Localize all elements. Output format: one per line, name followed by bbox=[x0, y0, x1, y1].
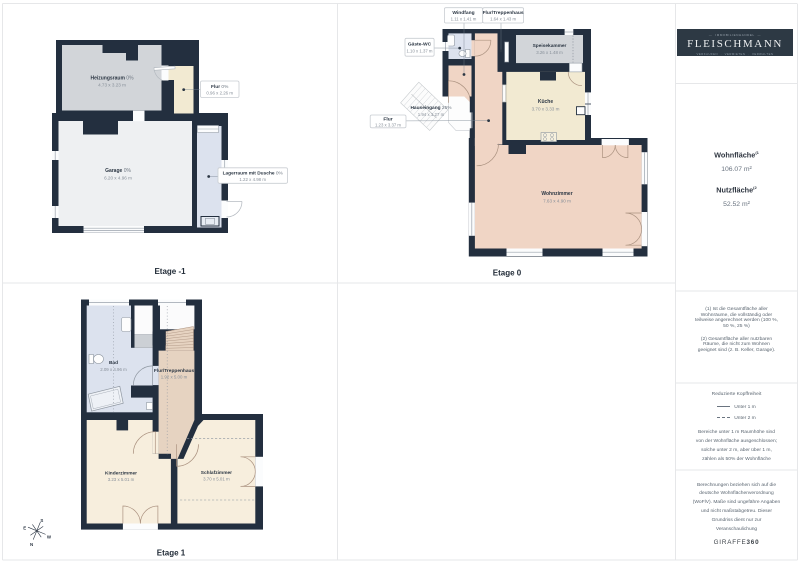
svg-text:Etage 1: Etage 1 bbox=[157, 549, 186, 558]
svg-text:Wohnzimmer: Wohnzimmer bbox=[541, 191, 572, 197]
svg-text:1.94 x 1.27 m: 1.94 x 1.27 m bbox=[418, 112, 445, 117]
svg-text:Lagerraum mit Dusche 0%: Lagerraum mit Dusche 0% bbox=[223, 170, 284, 176]
svg-text:1.92 x 5.00 m: 1.92 x 5.00 m bbox=[161, 375, 188, 380]
svg-text:6.20 x 4.96 m: 6.20 x 4.96 m bbox=[104, 176, 132, 181]
svg-text:0.96 x 2.26 m: 0.96 x 2.26 m bbox=[206, 91, 233, 96]
svg-text:3.70 x 5.01 m: 3.70 x 5.01 m bbox=[203, 477, 230, 482]
svg-text:Flur/Treppenhaus: Flur/Treppenhaus bbox=[154, 368, 195, 374]
svg-text:4.73 x 3.23 m: 4.73 x 3.23 m bbox=[98, 82, 126, 87]
svg-text:Etage 0: Etage 0 bbox=[493, 269, 522, 278]
svg-text:1.22 x 4.98 m: 1.22 x 4.98 m bbox=[239, 177, 266, 182]
svg-text:Flur/Treppenhaus: Flur/Treppenhaus bbox=[483, 10, 524, 16]
svg-text:Speisekammer: Speisekammer bbox=[533, 43, 567, 49]
svg-text:7.63 x 4.90 m: 7.63 x 4.90 m bbox=[543, 199, 571, 204]
svg-text:Windfang: Windfang bbox=[452, 10, 474, 16]
svg-text:1.23 x 3.37 m: 1.23 x 3.37 m bbox=[375, 122, 401, 127]
svg-text:Gäste-WC: Gäste-WC bbox=[408, 42, 432, 48]
svg-text:Flur 0%: Flur 0% bbox=[211, 84, 229, 90]
svg-text:3.23 x 5.01 m: 3.23 x 5.01 m bbox=[108, 477, 135, 482]
svg-text:W: W bbox=[47, 535, 52, 540]
svg-text:S: S bbox=[40, 518, 43, 523]
svg-text:N: N bbox=[30, 542, 33, 547]
svg-text:Kinderzimmer: Kinderzimmer bbox=[105, 471, 137, 477]
svg-text:Etage -1: Etage -1 bbox=[154, 267, 186, 276]
svg-text:3.70 x 3.33 m: 3.70 x 3.33 m bbox=[532, 107, 560, 112]
svg-text:1.10 x 1.37 m: 1.10 x 1.37 m bbox=[406, 48, 432, 53]
svg-text:Schlafzimmer: Schlafzimmer bbox=[201, 470, 232, 476]
svg-text:2.09 x 4.96 m: 2.09 x 4.96 m bbox=[100, 367, 127, 372]
svg-text:Heizungsraum 0%: Heizungsraum 0% bbox=[90, 76, 134, 82]
svg-text:1.64 x 1.43 m: 1.64 x 1.43 m bbox=[490, 16, 516, 21]
svg-text:Bad: Bad bbox=[109, 360, 118, 366]
svg-text:1.11 x 1.41 m: 1.11 x 1.41 m bbox=[451, 16, 477, 21]
svg-text:Garage 0%: Garage 0% bbox=[105, 168, 131, 174]
svg-text:E: E bbox=[23, 526, 26, 531]
svg-text:Küche: Küche bbox=[538, 99, 554, 105]
svg-text:3.26 x 1.48 m: 3.26 x 1.48 m bbox=[536, 50, 563, 55]
svg-text:Hauseingang 25%: Hauseingang 25% bbox=[410, 105, 452, 111]
